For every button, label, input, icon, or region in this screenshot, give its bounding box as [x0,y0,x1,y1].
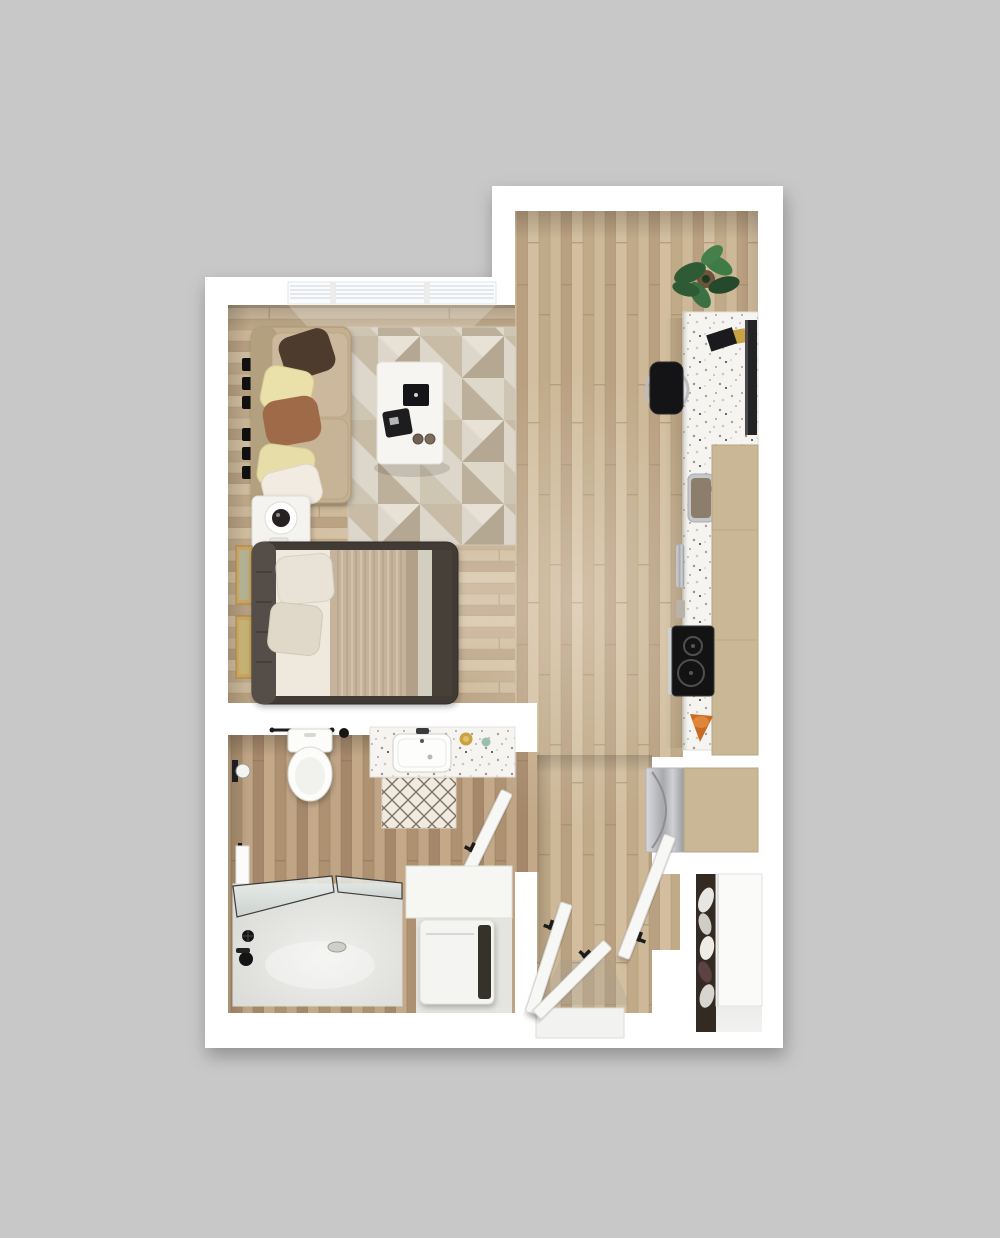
entry-closet [695,874,762,1032]
studio-floor-plan-render [0,0,1000,1238]
coffee-table [374,362,450,477]
faucet [416,728,429,734]
cutting-board [676,544,684,588]
bed [252,542,458,704]
washer-dryer [420,920,494,1004]
sliding-door [716,874,762,1006]
table-lamp [265,502,297,534]
induction-cooktop [668,626,714,696]
laptop [403,384,429,406]
bath-mat [382,778,456,828]
serving-tray [382,408,413,438]
vanity-sink [370,727,515,777]
counter-item [676,600,685,618]
window-blinds [288,282,496,332]
sofa [251,325,351,514]
laundry-nook [406,866,512,1013]
bar-stool [646,362,688,414]
duvet [330,550,452,696]
bathtub [233,876,402,1006]
floor-plan-canvas [0,0,1000,1238]
wall-hook [339,728,349,738]
glass-jar [482,738,491,747]
drain [328,942,346,952]
upper-cabinets [712,445,758,755]
shoe-rack [695,874,717,1032]
laundry-counter [406,866,512,918]
toilet [288,729,332,801]
wall-tv [745,320,757,435]
threshold [536,1008,624,1038]
